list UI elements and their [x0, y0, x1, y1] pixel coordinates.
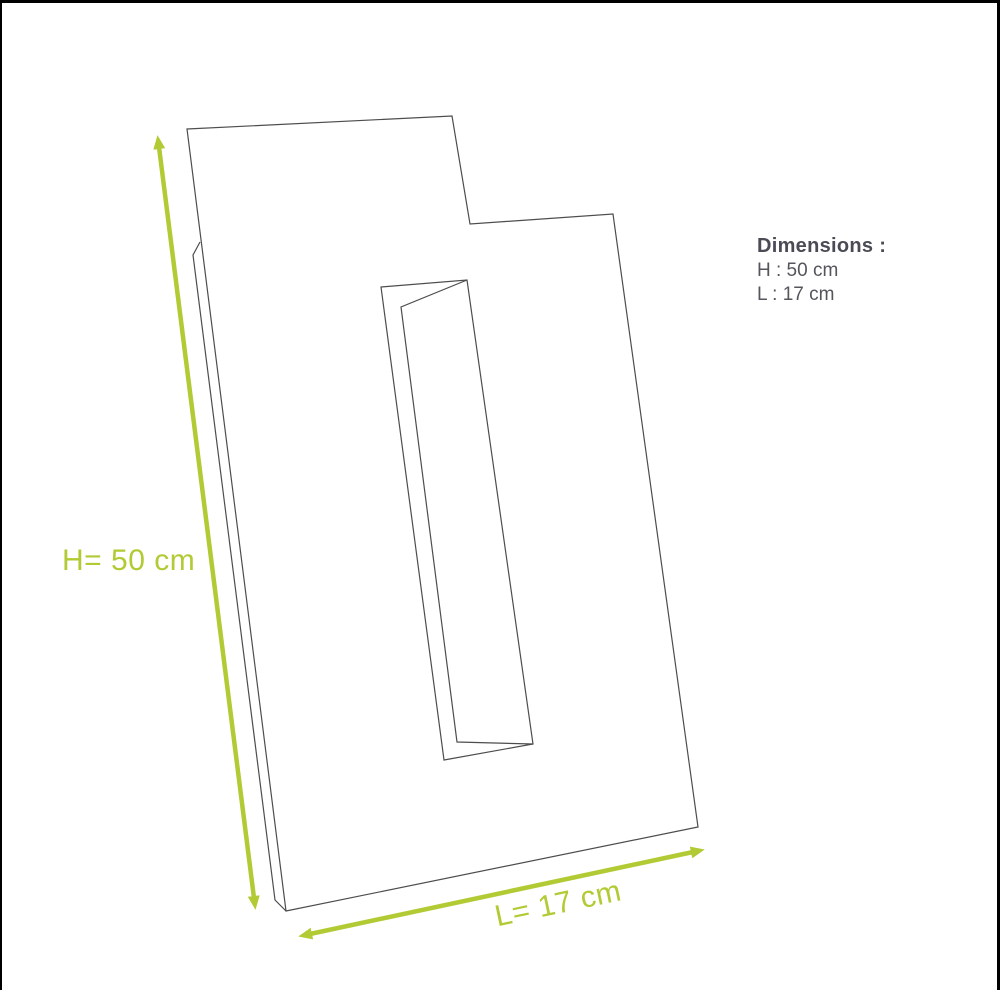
dimensions-length-value: L : 17 cm — [757, 283, 886, 307]
panel-side-thickness-edge — [193, 242, 286, 911]
slot-outline — [381, 280, 533, 760]
dimensions-panel: Dimensions : H : 50 cm L : 17 cm — [757, 233, 886, 307]
diagram-page: H= 50 cm L= 17 cm Dimensions : H : 50 cm… — [0, 0, 1000, 1000]
panel-drawing — [0, 0, 1000, 1000]
height-dimension-arrow — [159, 147, 254, 898]
dimensions-height-value: H : 50 cm — [757, 259, 886, 283]
slot-inner-edges — [401, 280, 533, 744]
height-dimension-label: H= 50 cm — [62, 544, 195, 578]
dimensions-title: Dimensions : — [757, 233, 886, 259]
panel-front-face — [187, 116, 698, 911]
